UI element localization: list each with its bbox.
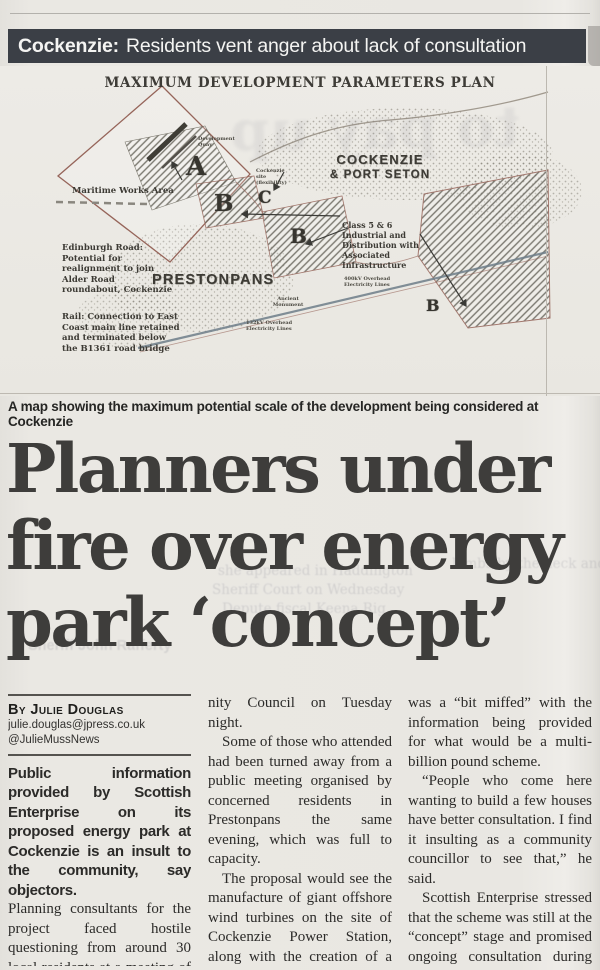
zone-b3-label: B <box>426 296 440 315</box>
column-3: was a “bit miffed” with the information … <box>408 694 592 966</box>
byline-author: By Julie Douglas <box>8 702 191 718</box>
headline-line-2: fire over energy <box>6 507 600 584</box>
column-2: nity Council on Tuesday night. Some of t… <box>208 694 392 966</box>
body-paragraph: “People who come here wanting to build a… <box>408 772 592 889</box>
map-label-ancient-monument: Ancient Monument <box>270 296 306 308</box>
byline-rule-top <box>8 694 191 696</box>
zone-b1-label: B <box>214 190 233 217</box>
map-label-development-quay: Development Quay <box>198 136 236 148</box>
zone-a-label: A <box>186 152 206 182</box>
top-rule <box>10 13 590 14</box>
byline-email: julie.douglas@jpress.co.uk <box>8 718 191 733</box>
body-paragraph: The proposal would see the manufacture o… <box>208 870 392 967</box>
map-label-cockenzie-site: Cockenzie site (flexibility) <box>256 168 296 186</box>
body-paragraph: Some of those who attended had been turn… <box>208 733 392 870</box>
byline-twitter: @JulieMussNews <box>8 733 191 748</box>
zone-c-label: C <box>258 188 272 208</box>
map-label-400kv-lines: 400kV Overhead Electricity Lines <box>344 276 396 288</box>
kicker-text: Residents vent anger about lack of consu… <box>126 35 526 58</box>
map-annotation-edinburgh-road: Edinburgh Road: Potential for realignmen… <box>62 243 176 296</box>
headline-line-3: park ‘concept’ <box>6 584 600 661</box>
map-label-132kv-lines: 132kV Overhead Electricity Lines <box>246 320 302 332</box>
article-headline: Planners under fire over energy park ‘co… <box>6 430 600 661</box>
map-town-port-seton: & PORT SETON <box>310 169 450 181</box>
zone-b2-label: B <box>290 224 307 248</box>
map-caption: A map showing the maximum potential scal… <box>8 399 594 429</box>
kicker-banner: Cockenzie: Residents vent anger about la… <box>8 29 586 63</box>
lead-paragraph: Public information provided by Scottish … <box>8 764 191 901</box>
map-annotation-class56: Class 5 & 6 Industrial and Distribution … <box>342 220 436 270</box>
map-right-edge <box>546 66 547 396</box>
map-bottom-edge <box>0 393 600 394</box>
column-1: By Julie Douglas julie.douglas@jpress.co… <box>8 694 191 966</box>
map-town-cockenzie: COCKENZIE <box>310 152 450 167</box>
development-plan-map: MAXIMUM DEVELOPMENT PARAMETERS PLAN A B … <box>0 66 600 396</box>
kicker-tag: Cockenzie: <box>18 35 119 58</box>
byline-rule-bottom <box>8 754 191 756</box>
torn-edge-speck <box>588 26 600 66</box>
body-paragraph: nity Council on Tuesday night. <box>208 694 392 733</box>
map-annotation-rail: Rail: Connection to East Coast main line… <box>62 312 182 354</box>
newspaper-page: { "kicker": { "tag": "Cockenzie:", "text… <box>0 0 600 970</box>
body-paragraph: was a “bit miffed” with the information … <box>408 694 592 772</box>
body-paragraph: Scottish Enterprise stressed that the sc… <box>408 889 592 966</box>
map-title: MAXIMUM DEVELOPMENT PARAMETERS PLAN <box>0 75 600 91</box>
headline-line-1: Planners under <box>6 430 600 507</box>
map-label-maritime-works: Maritime Works Area <box>72 186 182 197</box>
body-paragraph: Planning consultants for the project fac… <box>8 900 191 966</box>
